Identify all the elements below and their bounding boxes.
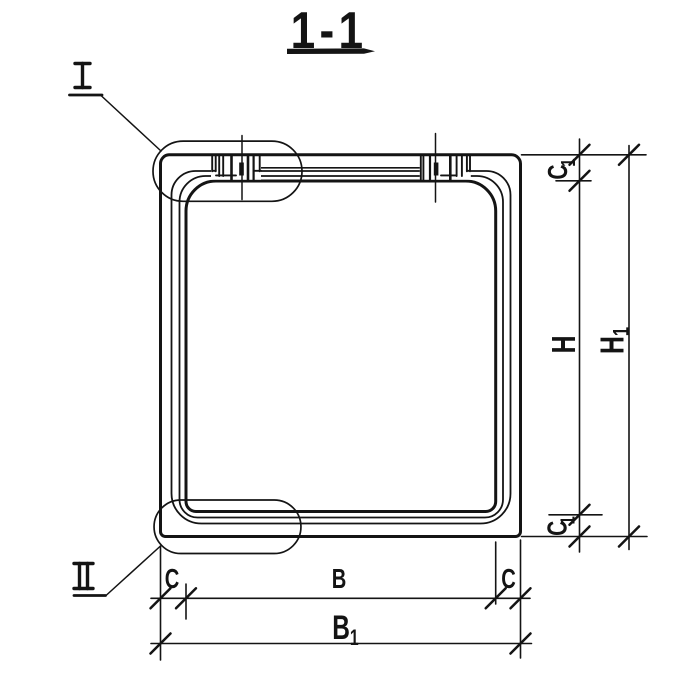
svg-text:H: H: [547, 336, 583, 354]
svg-text:C1: C1: [543, 158, 579, 179]
svg-text:H1: H1: [595, 327, 634, 354]
svg-text:B: B: [332, 564, 347, 595]
svg-text:B1: B1: [332, 609, 359, 651]
svg-text:C: C: [501, 564, 516, 595]
svg-text:C: C: [165, 564, 180, 595]
svg-text:C1: C1: [543, 516, 579, 536]
